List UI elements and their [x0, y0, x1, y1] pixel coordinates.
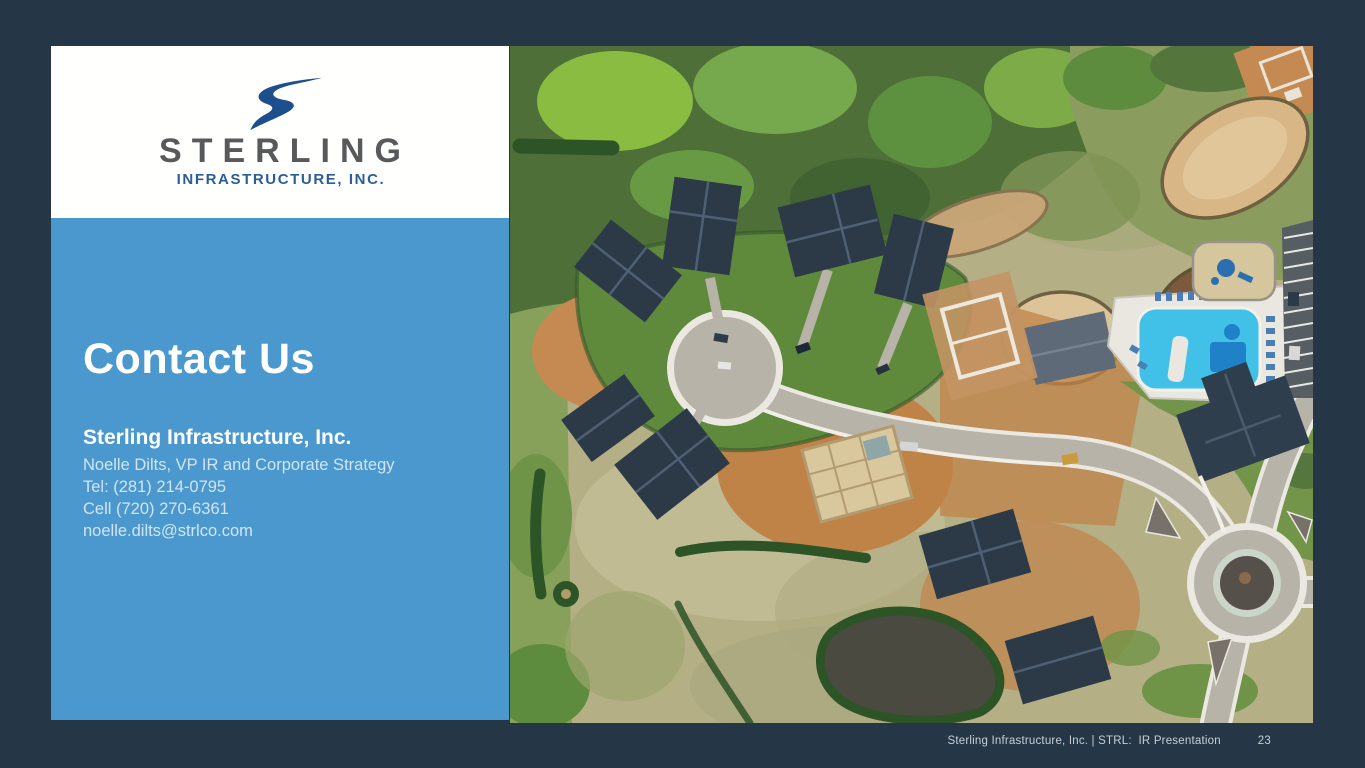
footer-caption: Sterling Infrastructure, Inc. | STRL: IR…: [948, 735, 1221, 747]
logo-box: STERLING INFRASTRUCTURE, INC.: [51, 46, 509, 218]
logo-subtitle: INFRASTRUCTURE, INC.: [177, 172, 386, 187]
page-title: Contact Us: [83, 336, 489, 383]
page-number: 23: [1258, 735, 1271, 747]
contact-company: Sterling Infrastructure, Inc.: [83, 425, 489, 450]
contact-tel: Tel: (281) 214-0795: [83, 476, 489, 498]
contact-email: noelle.dilts@strlco.com: [83, 520, 489, 542]
sterling-swoosh-icon: [236, 77, 324, 131]
aerial-photo: [510, 46, 1313, 723]
logo-wordmark: STERLING: [159, 134, 411, 168]
contact-person: Noelle Dilts, VP IR and Corporate Strate…: [83, 454, 489, 476]
contact-cell: Cell (720) 270-6361: [83, 498, 489, 520]
contact-panel: Contact Us Sterling Infrastructure, Inc.…: [51, 218, 509, 720]
slide-footer: Sterling Infrastructure, Inc. | STRL: IR…: [510, 735, 1313, 747]
